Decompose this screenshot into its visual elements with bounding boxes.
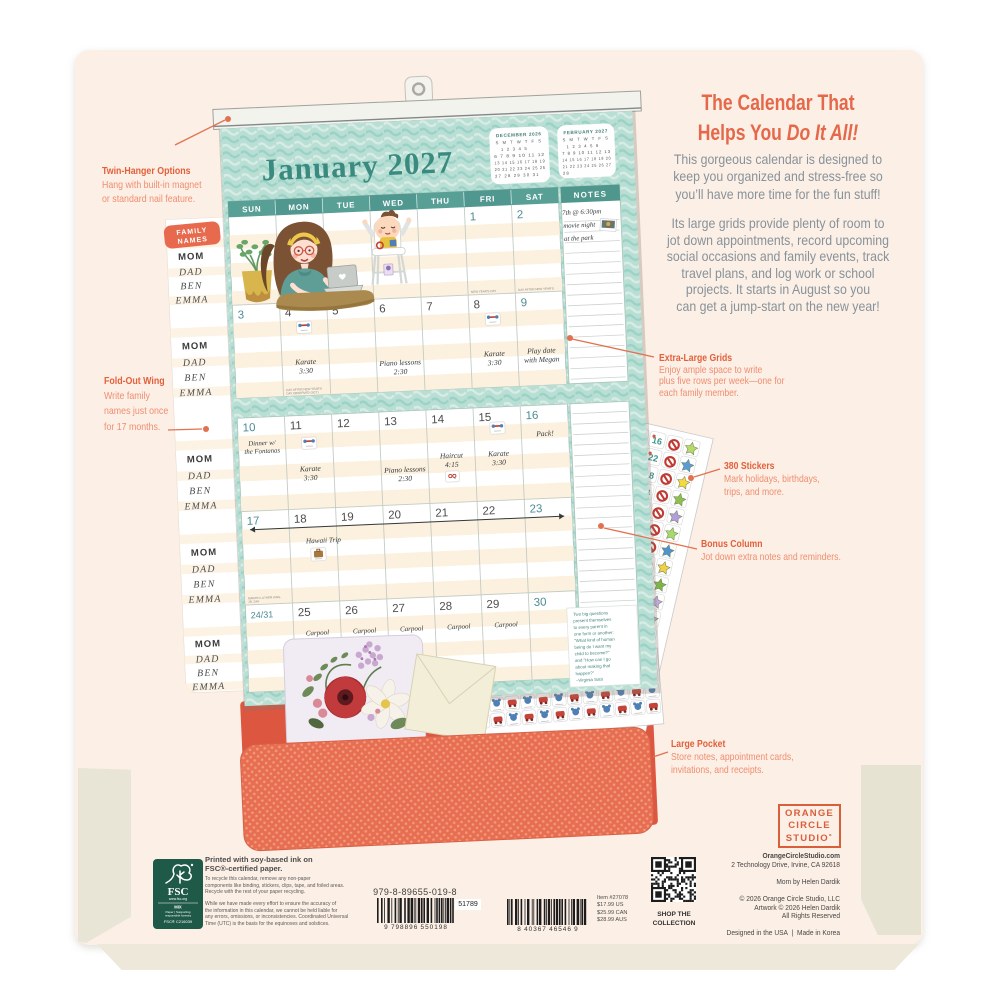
svg-text:Hawaii Trip: Hawaii Trip (305, 536, 342, 546)
svg-text:MOM: MOM (187, 454, 214, 466)
svg-text:MON: MON (288, 202, 309, 212)
svg-text:11: 11 (290, 420, 302, 433)
svg-text:6: 6 (379, 303, 386, 315)
svg-text:8: 8 (473, 299, 480, 311)
svg-text:20: 20 (388, 509, 401, 522)
svg-text:3:30: 3:30 (298, 366, 313, 376)
svg-text:9: 9 (520, 297, 527, 309)
svg-text:DAD: DAD (178, 266, 203, 278)
svg-text:WED: WED (383, 198, 404, 208)
svg-text:THU: THU (431, 196, 450, 206)
svg-text:3:30: 3:30 (303, 473, 318, 483)
svg-text:15: 15 (478, 412, 491, 425)
svg-text:2: 2 (517, 209, 524, 221)
svg-text:EMMA: EMMA (191, 681, 226, 693)
svg-text:Carpool: Carpool (400, 624, 424, 633)
svg-text:DAD: DAD (187, 470, 212, 482)
svg-text:BEN: BEN (197, 667, 220, 679)
svg-text:24/31: 24/31 (251, 609, 274, 620)
svg-text:23: 23 (529, 503, 542, 516)
svg-text:SUN: SUN (242, 204, 262, 214)
svg-text:EMMA: EMMA (183, 500, 218, 512)
svg-text:Karate: Karate (483, 349, 506, 359)
svg-text:DAD: DAD (195, 654, 220, 666)
svg-text:MOM: MOM (191, 547, 218, 559)
svg-text:Karate: Karate (294, 357, 317, 367)
svg-text:3: 3 (238, 309, 245, 321)
svg-text:BEN: BEN (189, 485, 212, 497)
svg-text:2:30: 2:30 (398, 474, 412, 484)
svg-text:FRI: FRI (480, 194, 496, 204)
svg-text:MOM: MOM (182, 340, 209, 352)
svg-text:3:30: 3:30 (487, 358, 502, 368)
svg-text:Carpool: Carpool (353, 626, 377, 635)
svg-text:27: 27 (392, 603, 405, 616)
svg-text:28: 28 (439, 601, 452, 614)
svg-text:10: 10 (242, 422, 255, 435)
svg-text:25: 25 (298, 607, 311, 620)
svg-text:30: 30 (533, 597, 546, 610)
svg-text:MOM: MOM (195, 638, 222, 650)
svg-text:happen?": happen?" (575, 670, 594, 676)
svg-text:2:30: 2:30 (394, 367, 408, 377)
svg-text:Dinner w/: Dinner w/ (247, 440, 277, 448)
svg-text:Karate: Karate (487, 448, 510, 458)
svg-text:at the park: at the park (564, 235, 595, 243)
svg-text:with Megan: with Megan (524, 354, 560, 365)
svg-text:21: 21 (435, 507, 448, 520)
svg-text:EMMA: EMMA (174, 294, 209, 306)
svg-text:BEN: BEN (180, 280, 203, 292)
svg-text:BEN: BEN (193, 579, 216, 591)
svg-text:EMMA: EMMA (187, 594, 222, 606)
svg-text:Karate: Karate (299, 464, 322, 474)
svg-text:16: 16 (525, 410, 538, 423)
svg-text:7: 7 (426, 301, 433, 313)
svg-text:13: 13 (384, 416, 397, 429)
svg-text:BEN: BEN (184, 372, 207, 384)
svg-text:DAD: DAD (182, 357, 207, 369)
svg-text:4:15: 4:15 (445, 460, 459, 470)
svg-text:SAT: SAT (526, 192, 544, 202)
svg-text:19: 19 (341, 511, 354, 524)
svg-text:NOTES: NOTES (573, 190, 607, 200)
svg-text:17: 17 (246, 515, 259, 528)
svg-text:1: 1 (470, 211, 477, 223)
svg-text:EMMA: EMMA (178, 387, 213, 399)
svg-text:MOM: MOM (178, 251, 205, 263)
svg-text:JR. DAY: JR. DAY (248, 599, 259, 603)
svg-text:Pack!: Pack! (535, 429, 554, 439)
svg-text:TUE: TUE (337, 200, 356, 210)
svg-text:Carpool: Carpool (306, 628, 330, 637)
svg-text:Carpool: Carpool (494, 620, 518, 629)
svg-text:movie night: movie night (563, 222, 596, 230)
svg-text:18: 18 (294, 513, 307, 526)
svg-text:26: 26 (345, 605, 358, 618)
svg-text:12: 12 (337, 418, 350, 431)
svg-text:22: 22 (482, 505, 495, 518)
svg-text:29: 29 (486, 599, 499, 612)
svg-text:28: 28 (563, 170, 570, 175)
svg-text:14: 14 (431, 414, 445, 427)
svg-text:DAD: DAD (191, 564, 216, 576)
svg-text:3:30: 3:30 (491, 458, 506, 468)
svg-text:Carpool: Carpool (447, 622, 471, 631)
